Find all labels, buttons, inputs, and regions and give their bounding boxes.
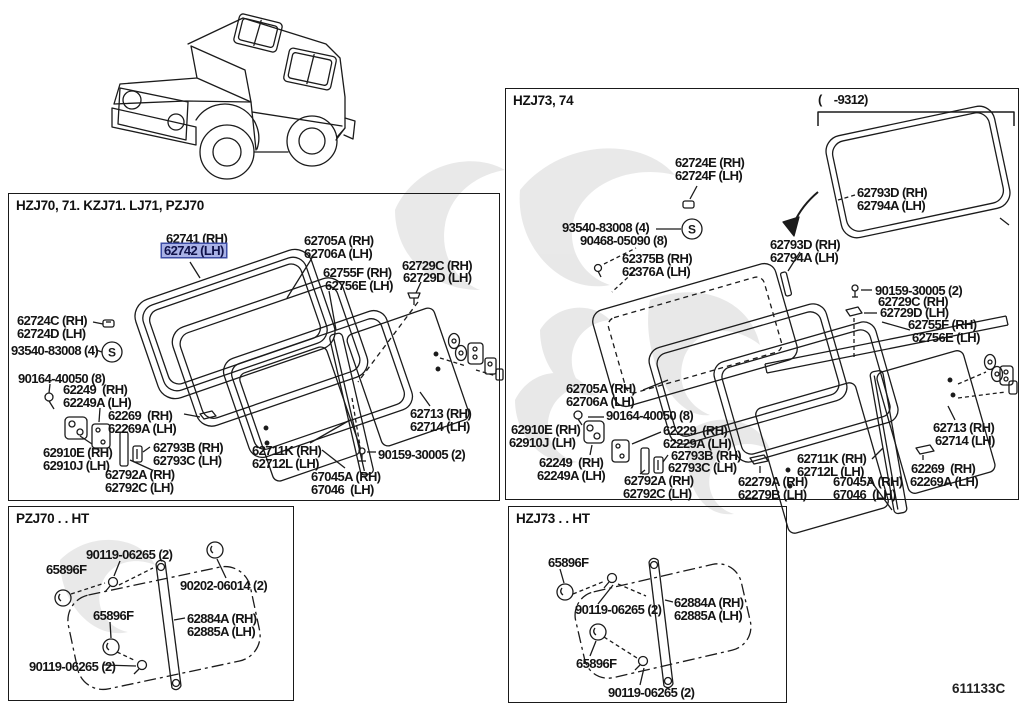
panel-title: HZJ73 . . HT <box>516 511 590 526</box>
panel-hzj73-74-group: HZJ73, 74 <box>505 88 1019 500</box>
panel-title: HZJ73, 74 <box>513 93 573 108</box>
panel-title: HZJ70, 71. KZJ71. LJ71, PZJ70 <box>16 198 204 213</box>
figure-code: 611133C <box>952 682 1005 696</box>
panel-pzj70-ht-group: PZJ70 . . HT <box>8 506 294 701</box>
panel-hzj73-ht-group: HZJ73 . . HT <box>508 506 787 703</box>
vehicle-illustration <box>112 13 355 179</box>
parts-diagram-page: S <box>0 0 1024 707</box>
panel-title: PZJ70 . . HT <box>16 511 89 526</box>
panel-hzj70-group: HZJ70, 71. KZJ71. LJ71, PZJ70 <box>8 193 500 501</box>
